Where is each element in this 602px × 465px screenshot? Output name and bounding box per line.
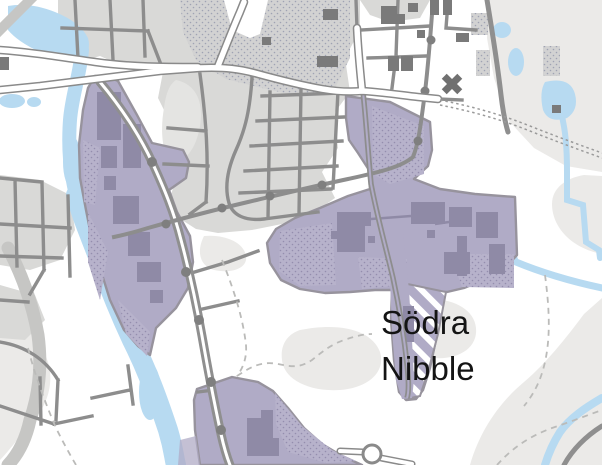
place-label-line1: Södra [381,300,475,346]
map-svg [0,0,602,465]
place-label: Södra Nibble [381,300,475,392]
place-label-line2: Nibble [381,346,475,392]
map-canvas[interactable]: Södra Nibble [0,0,602,465]
